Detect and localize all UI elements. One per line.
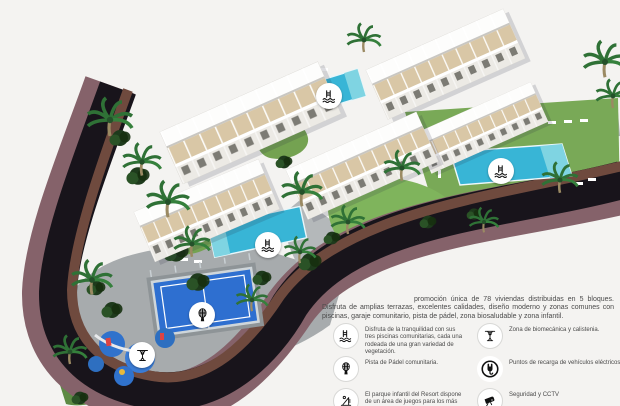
pool-icon bbox=[321, 88, 338, 105]
legend-text: Disfruta de la tranquilidad con sus tres… bbox=[365, 323, 465, 357]
calisthenics-icon bbox=[134, 347, 151, 364]
promo-paragraph: promoción única de 78 viviendas distribu… bbox=[322, 296, 614, 321]
map-marker-padel bbox=[189, 302, 215, 328]
calisthenics-icon bbox=[477, 323, 503, 349]
map-marker-pool-north bbox=[316, 83, 342, 109]
map-marker-calisthenics bbox=[129, 342, 155, 368]
legend-text: El parque infantil del Resort dispone de… bbox=[365, 388, 465, 406]
ev-charger-icon bbox=[477, 356, 503, 382]
map-marker-pool-east bbox=[488, 158, 514, 184]
aerial-render-promo-image: promoción única de 78 viviendas distribu… bbox=[0, 0, 620, 406]
legend-item-calisthenics: Zona de biomecánica y calistenia. bbox=[477, 323, 620, 349]
cctv-icon bbox=[477, 388, 503, 406]
legend-text: Zona de biomecánica y calistenia. bbox=[509, 323, 620, 334]
legend-text: Pista de Pádel comunitaria. bbox=[365, 356, 465, 367]
padel-icon bbox=[333, 356, 359, 382]
pool-icon bbox=[260, 237, 277, 254]
legend-item-pools: Disfruta de la tranquilidad con sus tres… bbox=[333, 323, 465, 357]
map-marker-pool-west bbox=[255, 232, 281, 258]
legend-item-playground: El parque infantil del Resort dispone de… bbox=[333, 388, 465, 406]
legend-item-padel: Pista de Pádel comunitaria. bbox=[333, 356, 465, 382]
playground-icon bbox=[333, 388, 359, 406]
legend-text: Seguridad y CCTV bbox=[509, 388, 620, 399]
pool-icon bbox=[333, 323, 359, 349]
legend-text: Puntos de recarga de vehículos eléctrico… bbox=[509, 356, 620, 367]
padel-icon bbox=[194, 307, 211, 324]
pool-icon bbox=[493, 163, 510, 180]
legend-item-ev-charger: Puntos de recarga de vehículos eléctrico… bbox=[477, 356, 620, 382]
legend-item-cctv: Seguridad y CCTV bbox=[477, 388, 620, 406]
